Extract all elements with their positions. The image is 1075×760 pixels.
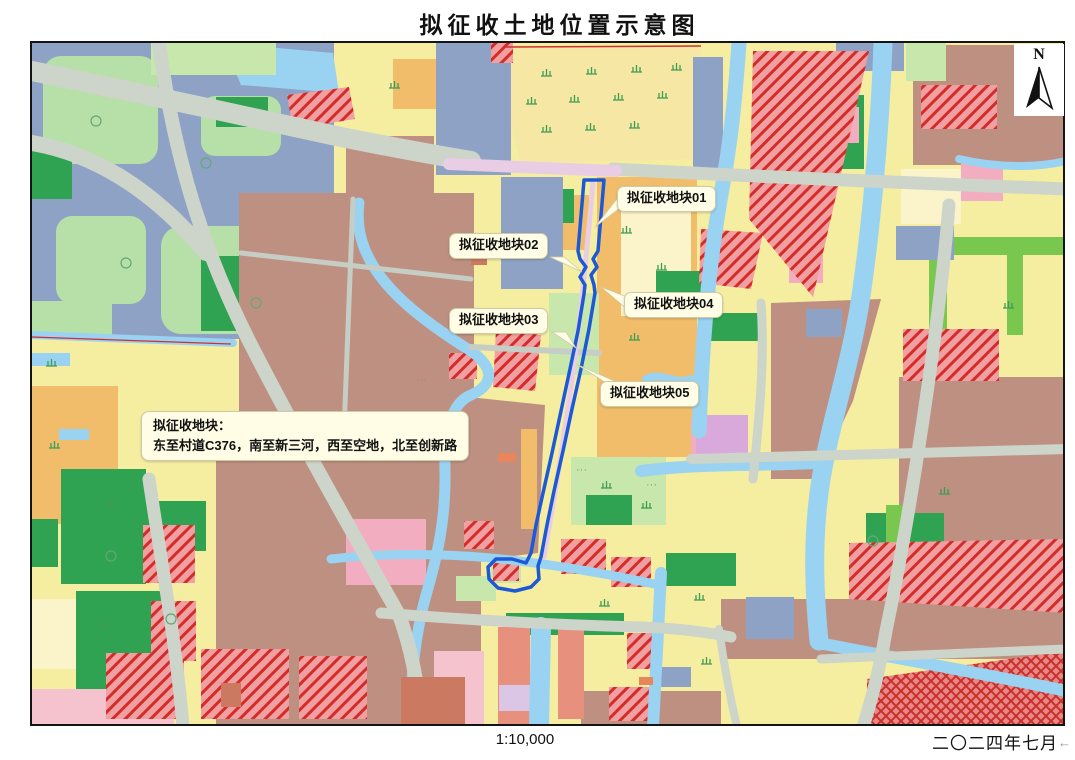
- plot-callout-04: 拟征收地块04: [624, 292, 723, 318]
- svg-text:···: ···: [576, 464, 587, 476]
- plot-callout-03-label: 拟征收地块03: [459, 312, 538, 327]
- plot-callout-02-label: 拟征收地块02: [459, 237, 538, 252]
- plot-callout-04-label: 拟征收地块04: [634, 296, 713, 311]
- plot-callout-05: 拟征收地块05: [600, 381, 699, 407]
- north-label: N: [1014, 46, 1064, 64]
- boundary-note-line1: 拟征收地块：: [153, 416, 457, 436]
- boundary-note-line2: 东至村道C376，南至新三河，西至空地，北至创新路: [153, 436, 457, 456]
- svg-text:···: ···: [646, 479, 657, 491]
- plot-callout-02: 拟征收地块02: [449, 233, 548, 259]
- corner-arrow: ←: [1058, 735, 1071, 750]
- north-arrow-icon: [1017, 64, 1061, 112]
- page: 拟征收土地位置示意图: [0, 0, 1075, 760]
- north-arrow: N: [1014, 44, 1064, 116]
- date-text: 二〇二四年七月: [893, 729, 1058, 754]
- plot-callout-01: 拟征收地块01: [617, 186, 716, 212]
- boundary-note: 拟征收地块： 东至村道C376，南至新三河，西至空地，北至创新路: [141, 411, 469, 461]
- map-title: 拟征收土地位置示意图: [0, 6, 1075, 40]
- scale-text: 1:10,000: [440, 731, 610, 748]
- plot-callout-05-label: 拟征收地块05: [610, 385, 689, 400]
- land-use-map: ··· ··· ···: [32, 43, 1063, 724]
- svg-text:···: ···: [416, 374, 427, 386]
- plot-callout-03: 拟征收地块03: [449, 308, 548, 334]
- map-frame: ··· ··· ···: [30, 41, 1065, 726]
- plot-callout-01-label: 拟征收地块01: [627, 190, 706, 205]
